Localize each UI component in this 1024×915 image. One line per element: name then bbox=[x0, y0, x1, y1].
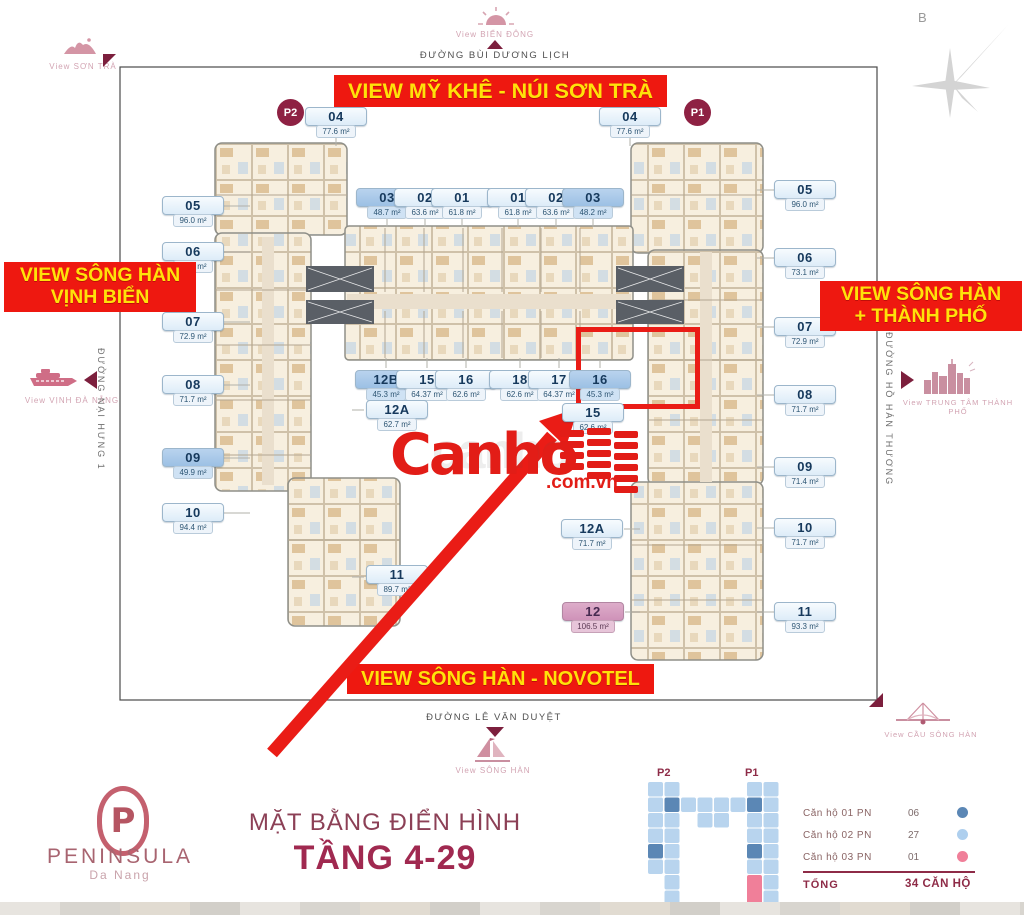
unit-label-10-right: 1071.7 m² bbox=[773, 518, 837, 549]
svg-text:P2: P2 bbox=[657, 767, 670, 779]
sun-icon bbox=[477, 5, 515, 29]
unit-area: 93.3 m² bbox=[785, 620, 824, 633]
legend-dot-1pn bbox=[957, 807, 968, 818]
unit-area: 77.6 m² bbox=[610, 125, 649, 138]
unit-number: 06 bbox=[162, 242, 224, 261]
city-icon bbox=[922, 358, 976, 396]
unit-area: 71.4 m² bbox=[785, 475, 824, 488]
unit-number: 10 bbox=[774, 518, 836, 537]
unit-label-05-left: 0596.0 m² bbox=[161, 196, 225, 227]
unit-label-04-p2: 0477.6 m² bbox=[304, 107, 368, 138]
view-bien-dong-label: View BIỂN ĐÔNG bbox=[430, 30, 560, 39]
unit-number: 01 bbox=[431, 188, 493, 207]
street-le-van-duyet: ĐƯỜNG LÊ VĂN DUYỆT bbox=[414, 712, 574, 723]
street-ho-han-thuong: ĐƯỜNG HỒ HÁN THƯƠNG bbox=[884, 332, 894, 492]
legend-row-2pn-value: 27 bbox=[908, 830, 919, 841]
logo-title: PENINSULA bbox=[40, 845, 200, 869]
street-bui-duong-lich: ĐƯỜNG BÙI DƯƠNG LỊCH bbox=[415, 50, 575, 61]
tower-p1-badge: P1 bbox=[684, 99, 711, 126]
direction-triangle-trung-tam bbox=[901, 371, 914, 389]
unit-area: 71.7 m² bbox=[785, 403, 824, 416]
unit-area: 96.0 m² bbox=[785, 198, 824, 211]
unit-label-12a-right: 12A71.7 m² bbox=[560, 519, 624, 550]
legend-row-2pn-label: Căn hộ 02 PN bbox=[803, 830, 903, 841]
unit-area: 106.5 m² bbox=[571, 620, 615, 633]
unit-label-08-left: 0871.7 m² bbox=[161, 375, 225, 406]
floorplan-poster: P2 P1 bbox=[0, 0, 1024, 915]
watermark: canho Canho .com.vn bbox=[380, 420, 660, 505]
unit-area: 71.7 m² bbox=[785, 536, 824, 549]
legend-total-label: TỔNG bbox=[803, 879, 839, 891]
unit-number: 05 bbox=[162, 196, 224, 215]
unit-number: 11 bbox=[774, 602, 836, 621]
banner-view-song-han-vinh-bien: VIEW SÔNG HÀN VỊNH BIỂN bbox=[4, 262, 196, 312]
unit-label-04-p1: 0477.6 m² bbox=[598, 107, 662, 138]
unit-number: 08 bbox=[162, 375, 224, 394]
banner-view-song-han-novotel: VIEW SÔNG HÀN - NOVOTEL bbox=[347, 664, 654, 694]
legend-row-3pn-value: 01 bbox=[908, 852, 919, 863]
logo-p-letter: P bbox=[111, 801, 136, 841]
unit-number: 06 bbox=[774, 248, 836, 267]
ship-icon bbox=[28, 368, 80, 388]
unit-number: 09 bbox=[774, 457, 836, 476]
sailboat-icon bbox=[472, 736, 514, 766]
legend-dot-2pn bbox=[957, 829, 968, 840]
bottom-cutoff-strip bbox=[0, 902, 1024, 915]
unit-label-10-left: 1094.4 m² bbox=[161, 503, 225, 534]
compass-rose-icon bbox=[912, 25, 1008, 118]
view-trung-tam-label: View TRUNG TÂM THÀNH PHỐ bbox=[896, 398, 1020, 416]
plan-floors: TẦNG 4-29 bbox=[230, 839, 540, 878]
banner-right-line1: VIEW SÔNG HÀN bbox=[832, 284, 1010, 306]
compass-north-label: B bbox=[918, 10, 927, 25]
unit-area: 49.9 m² bbox=[173, 466, 212, 479]
banner-left-line1: VIEW SÔNG HÀN bbox=[16, 265, 184, 287]
legend-divider bbox=[803, 871, 975, 873]
banner-left-line2: VỊNH BIỂN bbox=[16, 287, 184, 309]
unit-label-08-right: 0871.7 m² bbox=[773, 385, 837, 416]
logo-subtitle: Da Nang bbox=[40, 868, 200, 882]
direction-triangle-son-tra bbox=[103, 54, 116, 67]
unit-label-03-right: 0348.2 m² bbox=[561, 188, 625, 219]
unit-number: 12A bbox=[561, 519, 623, 538]
unit-area: 72.9 m² bbox=[785, 335, 824, 348]
legend-total-value: 34 CĂN HỘ bbox=[905, 878, 971, 890]
mountain-icon bbox=[62, 36, 98, 56]
unit-number: 10 bbox=[162, 503, 224, 522]
unit-area: 71.7 m² bbox=[173, 393, 212, 406]
unit-number: 16 bbox=[569, 370, 631, 389]
unit-number: 08 bbox=[774, 385, 836, 404]
unit-label-06-right: 0673.1 m² bbox=[773, 248, 837, 279]
svg-text:P1: P1 bbox=[745, 767, 758, 779]
unit-area: 96.0 m² bbox=[173, 214, 212, 227]
banner-view-song-han-thanh-pho: VIEW SÔNG HÀN + THÀNH PHỐ bbox=[820, 281, 1022, 331]
unit-number: 09 bbox=[162, 448, 224, 467]
street-nai-hung-1: ĐƯỜNG NẠI HƯNG 1 bbox=[96, 348, 106, 478]
unit-number: 11 bbox=[366, 565, 428, 584]
unit-label-16-highlighted: 1645.3 m² bbox=[568, 370, 632, 401]
direction-triangle-cau-song-han bbox=[869, 693, 883, 707]
unit-label-11-left: 1189.7 m² bbox=[365, 565, 429, 596]
unit-area: 94.4 m² bbox=[173, 521, 212, 534]
unit-area: 62.6 m² bbox=[446, 388, 485, 401]
legend-dot-3pn bbox=[957, 851, 968, 862]
legend-row-1pn-value: 06 bbox=[908, 808, 919, 819]
unit-number: 05 bbox=[774, 180, 836, 199]
unit-label-11-right: 1193.3 m² bbox=[773, 602, 837, 633]
banner-right-line2: + THÀNH PHỐ bbox=[832, 306, 1010, 328]
unit-label-09-left: 0949.9 m² bbox=[161, 448, 225, 479]
unit-area: 72.9 m² bbox=[173, 330, 212, 343]
plan-title: MẶT BẰNG ĐIỂN HÌNH bbox=[230, 809, 540, 837]
bridge-icon bbox=[894, 700, 952, 728]
unit-number: 12A bbox=[366, 400, 428, 419]
unit-label-01-left: 0161.8 m² bbox=[430, 188, 494, 219]
unit-area: 45.3 m² bbox=[580, 388, 619, 401]
unit-area: 61.8 m² bbox=[442, 206, 481, 219]
unit-area: 73.1 m² bbox=[785, 266, 824, 279]
legend-row-1pn-label: Căn hộ 01 PN bbox=[803, 808, 903, 819]
unit-area: 71.7 m² bbox=[572, 537, 611, 550]
direction-triangle-vinh-da-nang bbox=[84, 371, 97, 389]
unit-area: 89.7 m² bbox=[377, 583, 416, 596]
unit-number: 12 bbox=[562, 602, 624, 621]
legend-row-3pn-label: Căn hộ 03 PN bbox=[803, 852, 903, 863]
unit-area: 77.6 m² bbox=[316, 125, 355, 138]
unit-label-12-pink: 12106.5 m² bbox=[561, 602, 625, 633]
unit-number: 04 bbox=[305, 107, 367, 126]
view-vinh-da-nang-label: View VỊNH ĐÀ NẴNG bbox=[12, 396, 132, 405]
unit-label-07-left: 0772.9 m² bbox=[161, 312, 225, 343]
unit-label-05-right: 0596.0 m² bbox=[773, 180, 837, 211]
view-son-tra-label: View SƠN TRÀ bbox=[28, 62, 138, 71]
tower-p2-badge: P2 bbox=[277, 99, 304, 126]
unit-number: 07 bbox=[162, 312, 224, 331]
banner-view-my-khe: VIEW MỸ KHÊ - NÚI SƠN TRÀ bbox=[334, 75, 667, 107]
direction-triangle-bien-dong bbox=[487, 40, 503, 49]
view-song-han-label: View SÔNG HÀN bbox=[433, 766, 553, 775]
unit-label-09-right: 0971.4 m² bbox=[773, 457, 837, 488]
unit-number: 03 bbox=[562, 188, 624, 207]
view-cau-song-han-label: View CẦU SÔNG HÀN bbox=[876, 730, 986, 739]
direction-triangle-le-van-duyet bbox=[486, 727, 504, 737]
unit-area: 48.2 m² bbox=[573, 206, 612, 219]
watermark-building-icon bbox=[560, 428, 644, 498]
key-plan-diagram: P2 P1 bbox=[648, 767, 779, 905]
unit-number: 04 bbox=[599, 107, 661, 126]
